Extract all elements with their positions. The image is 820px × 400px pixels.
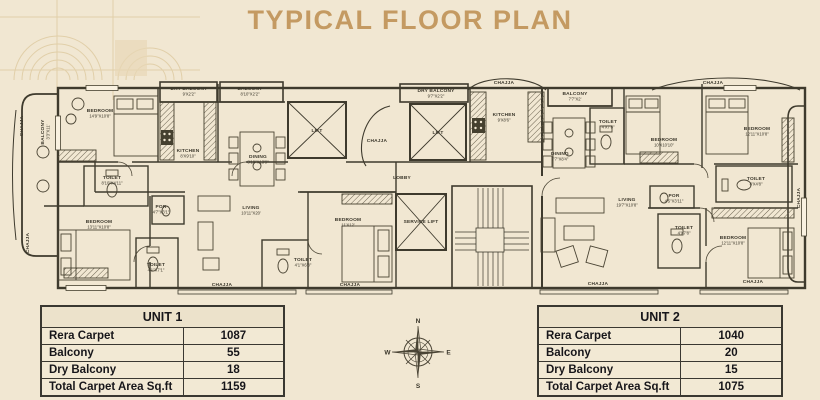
- svg-text:12'11"X10'8": 12'11"X10'8": [721, 240, 745, 245]
- svg-text:8'10"X4'11": 8'10"X4'11": [101, 180, 123, 185]
- label-service-lift: SERVICE LIFT: [404, 219, 439, 225]
- row-label: Balcony: [42, 345, 184, 361]
- svg-text:12'11"X10'8": 12'11"X10'8": [745, 131, 769, 136]
- room-label-balcony-left: BALCONY 3'3"X11': [40, 119, 50, 145]
- svg-text:13'11"X10'8": 13'11"X10'8": [87, 224, 111, 229]
- row-label: Balcony: [539, 345, 681, 361]
- svg-text:4'X7'8": 4'X7'8": [602, 124, 615, 129]
- room-label-toilet-4: TOILET4'X7'8": [599, 119, 617, 129]
- compass-east-label: E: [446, 350, 451, 357]
- label-chajja-left-2: CHAJJA: [25, 232, 31, 253]
- label-lobby: LOBBY: [393, 175, 411, 181]
- svg-text:8'10"X2'2": 8'10"X2'2": [240, 91, 260, 96]
- svg-text:8'X9'10": 8'X9'10": [180, 153, 196, 158]
- svg-text:14'9"X10'8": 14'9"X10'8": [89, 113, 111, 118]
- row-label: Total Carpet Area Sq.ft: [539, 379, 681, 395]
- compass-south-label: S: [416, 383, 421, 390]
- row-value: 1087: [184, 328, 283, 344]
- room-label-toilet-5: TOILET8'X4'8": [747, 176, 765, 186]
- room-label-bedroom-mr: BEDROOM10'X10'10": [651, 137, 677, 147]
- svg-text:4'1"X6'8": 4'1"X6'8": [295, 262, 312, 267]
- unit1-row-rera-carpet: Rera Carpet 1087: [42, 328, 283, 345]
- svg-text:8'10"X13'9": 8'10"X13'9": [247, 159, 269, 164]
- svg-text:11'X12': 11'X12': [341, 222, 355, 227]
- room-label-living-1: LIVING10'11"X20': [241, 205, 261, 215]
- row-value: 1040: [681, 328, 781, 344]
- row-value: 15: [681, 362, 781, 378]
- unit2-table: UNIT 2 Rera Carpet 1040 Balcony 20 Dry B…: [537, 305, 783, 397]
- unit2-row-balcony: Balcony 20: [539, 345, 781, 362]
- label-chajja-bottom-1: CHAJJA: [212, 282, 233, 288]
- unit2-row-rera-carpet: Rera Carpet 1040: [539, 328, 781, 345]
- svg-text:9'7"X2'2": 9'7"X2'2": [428, 93, 445, 98]
- unit1-table-title: UNIT 1: [42, 307, 283, 328]
- unit1-row-dry-balcony: Dry Balcony 18: [42, 362, 283, 379]
- svg-text:3'3"X11': 3'3"X11': [45, 124, 50, 139]
- svg-text:8'X4'8": 8'X4'8": [750, 181, 763, 186]
- svg-text:7'7"X8'4": 7'7"X8'4": [552, 156, 569, 161]
- room-label-dining-2: DINING7'7"X8'4": [551, 151, 569, 161]
- room-label-kitchen-1: KITCHEN8'X9'10": [177, 148, 200, 158]
- row-label: Rera Carpet: [539, 328, 681, 344]
- row-value: 18: [184, 362, 283, 378]
- room-label-toilet-1: TOILET8'10"X4'11": [101, 175, 123, 185]
- row-value: 1075: [681, 379, 781, 395]
- room-label-kitchen-2: KITCHEN9'X8'6": [493, 112, 516, 122]
- label-chajja-bottom-4: CHAJJA: [743, 279, 764, 285]
- row-label: Rera Carpet: [42, 328, 184, 344]
- room-label-dry-balcony-1: DRY BALCONY9'X2'2": [170, 86, 208, 96]
- room-label-por-1: POR4'7"X3'1": [153, 204, 170, 214]
- unit2-table-title: UNIT 2: [539, 307, 781, 328]
- label-lift-2: LIFT: [433, 130, 444, 136]
- svg-text:4'1"X7'1": 4'1"X7'1": [148, 267, 165, 272]
- label-chajja-right: CHAJJA: [796, 187, 802, 208]
- compass-west-label: W: [384, 350, 391, 357]
- row-value: 1159: [184, 379, 283, 395]
- room-label-living-2: LIVING19'7"X10'8": [616, 197, 638, 207]
- svg-text:19'7"X10'8": 19'7"X10'8": [616, 202, 638, 207]
- room-label-bedroom-tr: BEDROOM12'11"X10'8": [744, 126, 770, 136]
- room-label-balcony-t2: BALCONY7'7"X2': [562, 91, 588, 101]
- svg-text:4'7"X3'1": 4'7"X3'1": [153, 209, 170, 214]
- label-chajja-top-center: CHAJJA: [494, 80, 515, 86]
- row-value: 20: [681, 345, 781, 361]
- svg-text:4'X7'8": 4'X7'8": [678, 230, 691, 235]
- compass-rose: N S W E: [383, 314, 453, 394]
- room-label-toilet-2: TOILET4'1"X7'1": [147, 262, 165, 272]
- svg-text:9'X8'6": 9'X8'6": [498, 117, 511, 122]
- label-chajja-mid-left: CHAJJA: [367, 138, 388, 144]
- room-label-balcony-t1: BALCONY8'10"X2'2": [237, 86, 263, 96]
- room-label-dry-balcony-2: DRY BALCONY9'7"X2'2": [417, 88, 455, 98]
- room-label-bedroom-bl: BEDROOM13'11"X10'8": [86, 219, 112, 229]
- room-label-toilet-3: TOILET4'1"X6'8": [294, 257, 312, 267]
- unit1-table: UNIT 1 Rera Carpet 1087 Balcony 55 Dry B…: [40, 305, 285, 397]
- unit2-row-total: Total Carpet Area Sq.ft 1075: [539, 379, 781, 395]
- room-label-bedroom-tl: BEDROOM14'9"X10'8": [87, 108, 113, 118]
- furniture: [37, 96, 794, 282]
- svg-text:4'5"X3'11": 4'5"X3'11": [665, 198, 684, 203]
- label-chajja-bottom-3: CHAJJA: [588, 281, 609, 287]
- label-chajja-bottom-2: CHAJJA: [340, 282, 361, 288]
- row-value: 55: [184, 345, 283, 361]
- row-label: Total Carpet Area Sq.ft: [42, 379, 184, 395]
- svg-text:10'X10'10": 10'X10'10": [654, 142, 674, 147]
- room-label-por-2: POR4'5"X3'11": [665, 193, 684, 203]
- unit1-row-total: Total Carpet Area Sq.ft 1159: [42, 379, 283, 395]
- svg-text:7'7"X2': 7'7"X2': [569, 96, 582, 101]
- door-arcs: [118, 162, 722, 262]
- staircase: [452, 186, 532, 288]
- svg-text:10'11"X20': 10'11"X20': [241, 210, 261, 215]
- room-label-bedroom-br: BEDROOM12'11"X10'8": [720, 235, 746, 245]
- compass-points: [392, 326, 444, 378]
- svg-text:9'X2'2": 9'X2'2": [183, 91, 196, 96]
- label-lift-1: LIFT: [312, 128, 323, 134]
- compass-north-label: N: [416, 318, 421, 325]
- room-label-dining-1: DINING8'10"X13'9": [247, 154, 269, 164]
- label-chajja-top-right: CHAJJA: [703, 80, 724, 86]
- row-label: Dry Balcony: [42, 362, 184, 378]
- unit1-row-balcony: Balcony 55: [42, 345, 283, 362]
- row-label: Dry Balcony: [539, 362, 681, 378]
- unit2-row-dry-balcony: Dry Balcony 15: [539, 362, 781, 379]
- room-label-toilet-6: TOILET4'X7'8": [675, 225, 693, 235]
- label-chajja-left-1: CHAJJA: [19, 115, 25, 136]
